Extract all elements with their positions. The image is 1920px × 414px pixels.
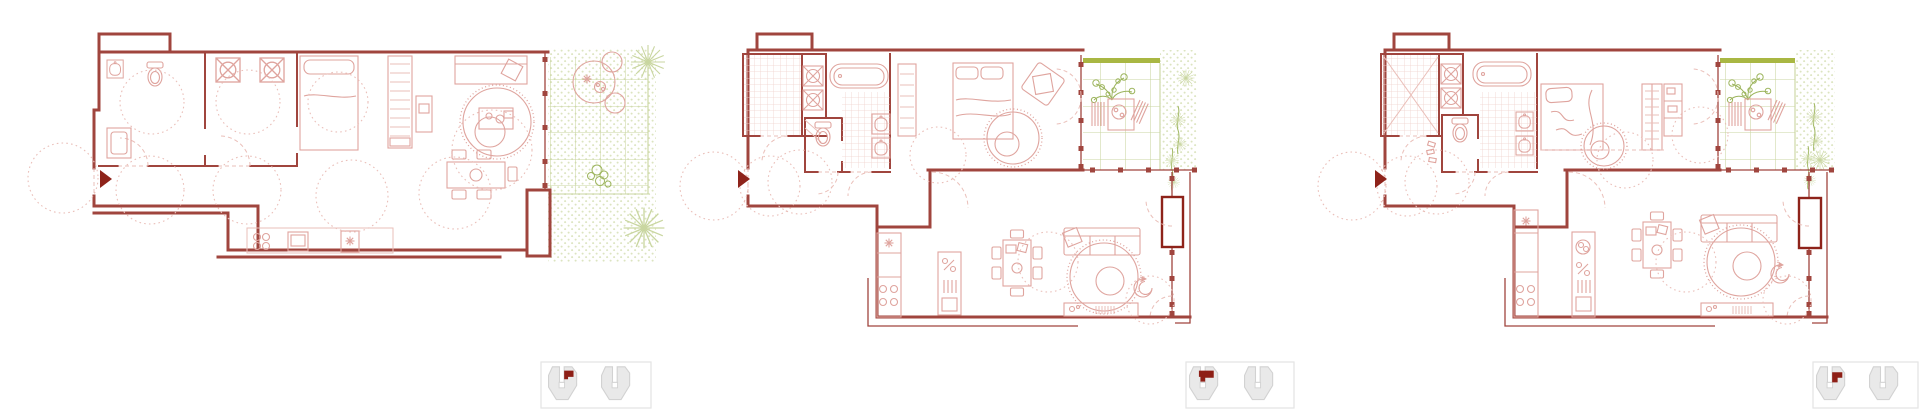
wardrobe-icon [388,56,412,148]
shower-room [744,55,823,142]
storage-room [216,58,284,82]
clearance-circles [680,150,832,220]
floor-plans-canvas [0,0,1920,414]
tv-bench-icon [1064,303,1138,316]
living-dining [992,197,1183,324]
kitchen-counter-icon [877,233,901,317]
cushion-icon [501,59,523,81]
floor-plan-3 [1318,34,1835,326]
garden [548,45,665,262]
bathroom [107,60,163,158]
unit-locator-3[interactable] [1813,362,1918,408]
round-rug-icon [1581,123,1627,169]
bedroom [898,62,1081,183]
wardrobe-icon [1642,84,1682,150]
shelving-icon [898,64,916,136]
terrace-edge [1083,58,1160,63]
kitchen [877,233,961,317]
dining-table-icon [447,150,517,199]
light-star-icon [346,237,355,246]
skylight-icon [1441,64,1461,84]
skylight-icon [803,66,823,86]
kitchen-island-icon [938,252,961,315]
grass-burst-icon [624,208,665,249]
clearance-circles [28,70,532,232]
terrace [1720,50,1835,189]
washbasin-icon [107,60,123,78]
skylight-icon [1441,88,1461,108]
toilet-icon [815,122,831,146]
toilet-icon [147,62,163,86]
unit-locator-2[interactable] [1186,362,1294,408]
bedroom-area [300,56,527,150]
grass-burst-icon [1178,70,1195,87]
slippers-icon [1427,141,1437,162]
grass-burst-icon [1810,150,1830,170]
dining-table-icon [992,230,1042,296]
skylight-icon [216,58,240,82]
living-dining [447,85,534,199]
skylight-icon [260,58,284,82]
living-dining [1632,198,1821,324]
desk-icon [416,96,432,132]
floor-plan-2 [680,34,1197,326]
planter-icon [1162,197,1183,247]
floor-plan-1 [28,34,665,262]
armchair-icon [1021,62,1066,107]
floor-plans-strip [0,0,1920,414]
grass-burst-icon [631,45,665,79]
skylight-icon [803,90,823,110]
terrace-edge [1720,58,1795,63]
toilet-icon [1452,118,1468,142]
clearance-circles [1318,150,1469,220]
bed-icon [300,56,358,150]
shower-room [1382,55,1461,135]
unit-locator-1[interactable] [541,362,651,408]
planter-icon [1799,198,1821,248]
sofa-icon [1063,228,1140,255]
entry-arrow-icon [100,170,112,188]
kitchen-island-icon [1572,232,1595,317]
